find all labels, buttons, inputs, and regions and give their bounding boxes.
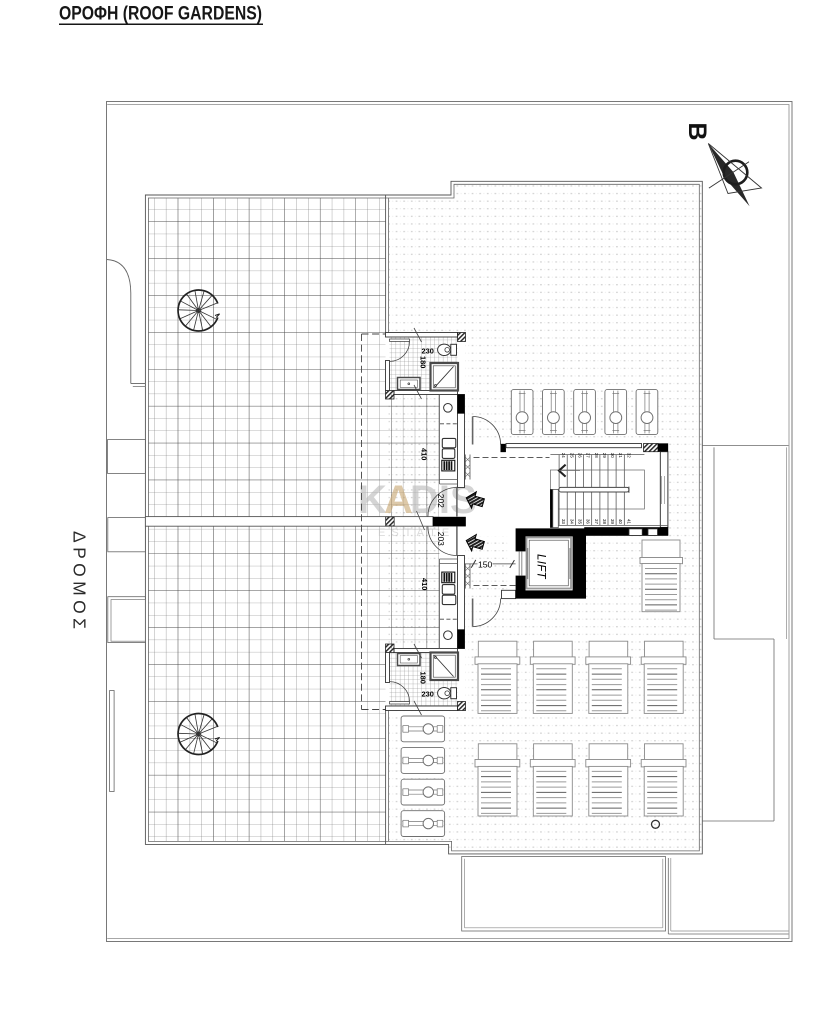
svg-text:29: 29 [602,453,607,458]
svg-text:A: A [384,478,413,522]
svg-text:410: 410 [420,448,429,460]
svg-text:K: K [358,478,387,522]
svg-text:ΟΡΟΦΗ (ROOF GARDENS): ΟΡΟΦΗ (ROOF GARDENS) [59,4,262,25]
svg-text:203: 203 [436,532,446,546]
svg-text:410: 410 [420,578,429,590]
svg-text:28: 28 [594,453,599,458]
svg-text:34: 34 [569,519,574,524]
svg-text:180: 180 [419,356,428,368]
svg-text:40: 40 [618,519,623,524]
svg-text:B: B [683,123,711,141]
svg-text:27: 27 [586,453,591,458]
svg-text:31: 31 [618,453,623,458]
svg-text:36: 36 [586,519,591,524]
svg-text:24: 24 [561,453,566,458]
svg-text:LIFT: LIFT [535,554,547,580]
svg-text:35: 35 [578,519,583,524]
svg-text:32: 32 [626,453,631,458]
svg-text:150: 150 [478,559,493,569]
svg-text:25: 25 [569,453,574,458]
svg-text:ΔΡΟΜΟΣ: ΔΡΟΜΟΣ [70,531,90,633]
svg-text:180: 180 [419,672,428,684]
svg-text:39: 39 [610,519,615,524]
svg-text:230: 230 [422,347,434,356]
svg-text:38: 38 [602,519,607,524]
svg-text:230: 230 [422,690,434,699]
svg-text:41: 41 [626,519,631,524]
svg-text:202: 202 [436,494,446,508]
svg-text:33: 33 [561,519,566,524]
svg-text:26: 26 [578,453,583,458]
svg-text:30: 30 [610,453,615,458]
svg-text:37: 37 [594,519,599,524]
